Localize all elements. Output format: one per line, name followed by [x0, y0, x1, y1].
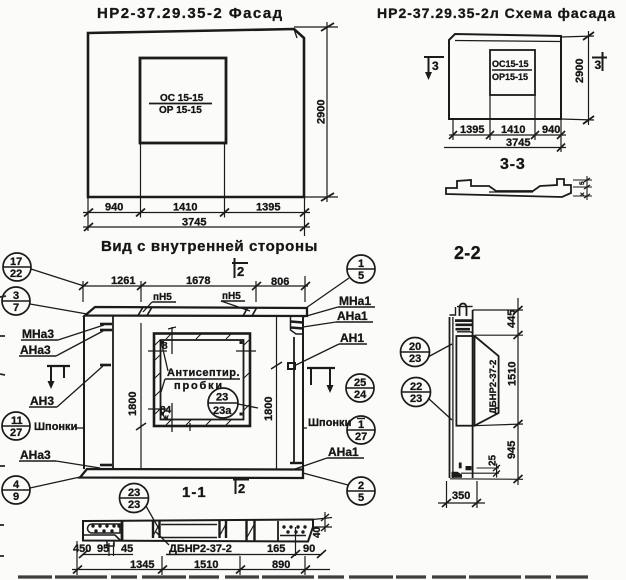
- svg-text:5: 5: [358, 492, 364, 504]
- svg-text:Шпонки: Шпонки: [34, 421, 77, 433]
- svg-text:2900: 2900: [316, 100, 328, 124]
- svg-text:23: 23: [128, 499, 140, 511]
- svg-text:5: 5: [579, 181, 586, 185]
- svg-text:940: 940: [105, 202, 123, 214]
- svg-text:20: 20: [409, 341, 421, 353]
- svg-text:ОС 15-15: ОС 15-15: [160, 93, 204, 104]
- svg-text:ДБНР2-37-2: ДБНР2-37-2: [488, 360, 499, 414]
- svg-text:40: 40: [312, 526, 323, 538]
- svg-text:2-2: 2-2: [454, 243, 481, 263]
- svg-text:22: 22: [410, 381, 422, 393]
- svg-text:ОР 15-15: ОР 15-15: [159, 105, 202, 116]
- svg-text:24: 24: [354, 389, 367, 401]
- svg-text:27: 27: [10, 427, 22, 439]
- svg-text:890: 890: [272, 559, 290, 571]
- svg-text:1510: 1510: [507, 362, 519, 386]
- svg-text:3745: 3745: [182, 217, 206, 229]
- svg-text:1261: 1261: [111, 275, 135, 287]
- svg-text:25: 25: [488, 454, 499, 466]
- svg-text:25: 25: [354, 377, 366, 389]
- svg-text:АНа3: АНа3: [20, 448, 51, 462]
- svg-text:3: 3: [595, 58, 602, 72]
- svg-text:х: х: [579, 192, 586, 196]
- svg-text:2: 2: [358, 480, 364, 492]
- svg-text:ОС15-15: ОС15-15: [492, 59, 529, 69]
- svg-text:23: 23: [216, 392, 228, 404]
- svg-text:4: 4: [13, 479, 20, 491]
- svg-text:2900: 2900: [574, 59, 586, 83]
- svg-text:1410: 1410: [501, 124, 525, 136]
- svg-text:1800: 1800: [127, 392, 139, 416]
- svg-text:АНа3: АНа3: [20, 343, 51, 357]
- svg-text:3: 3: [13, 290, 19, 302]
- svg-text:1510: 1510: [194, 559, 218, 571]
- svg-text:1410: 1410: [173, 202, 197, 214]
- svg-text:806: 806: [271, 276, 289, 288]
- svg-text:АН1: АН1: [340, 331, 364, 345]
- svg-text:23: 23: [410, 393, 422, 405]
- svg-text:1: 1: [358, 258, 364, 270]
- svg-text:1395: 1395: [256, 202, 280, 214]
- svg-text:940: 940: [542, 124, 560, 136]
- svg-text:3-3: 3-3: [500, 156, 526, 173]
- svg-text:2: 2: [237, 264, 244, 279]
- svg-text:МНа1: МНа1: [339, 294, 371, 308]
- svg-text:НР2-37.29.35-2л Схема фасада: НР2-37.29.35-2л Схема фасада: [377, 5, 616, 21]
- svg-text:45: 45: [121, 543, 133, 555]
- svg-text:МНа3: МНа3: [22, 327, 54, 341]
- svg-text:1800: 1800: [263, 397, 275, 421]
- svg-text:23: 23: [409, 353, 421, 365]
- svg-text:9: 9: [13, 491, 19, 503]
- svg-text:ОР15-15: ОР15-15: [492, 72, 528, 82]
- svg-text:5: 5: [358, 270, 364, 282]
- svg-text:АНа1: АНа1: [328, 445, 359, 459]
- svg-text:90: 90: [303, 543, 315, 555]
- svg-text:АН3: АН3: [30, 394, 54, 408]
- svg-text:3745: 3745: [506, 137, 530, 149]
- svg-text:3: 3: [432, 59, 439, 73]
- svg-text:23а: 23а: [213, 405, 232, 417]
- svg-text:Вид с внутренней стороны: Вид с внутренней стороны: [101, 238, 318, 255]
- svg-text:1678: 1678: [186, 275, 210, 287]
- svg-text:350: 350: [452, 490, 470, 502]
- svg-text:450: 450: [73, 543, 91, 555]
- svg-text:1345: 1345: [130, 559, 154, 571]
- svg-text:НР2-37.29.35-2 Фасад: НР2-37.29.35-2 Фасад: [97, 5, 284, 22]
- svg-text:23: 23: [128, 487, 140, 499]
- svg-text:17: 17: [10, 256, 22, 268]
- svg-text:1: 1: [358, 419, 364, 431]
- svg-text:7: 7: [13, 302, 19, 314]
- svg-text:АНа1: АНа1: [337, 309, 368, 323]
- svg-text:1-1: 1-1: [182, 484, 207, 501]
- svg-text:11: 11: [11, 415, 23, 427]
- svg-text:22: 22: [10, 268, 22, 280]
- svg-text:Антисептир.: Антисептир.: [167, 367, 240, 379]
- svg-text:Шпонки: Шпонки: [308, 417, 351, 429]
- svg-text:2: 2: [238, 481, 245, 496]
- svg-text:ДБНР2-37-2: ДБНР2-37-2: [169, 543, 232, 555]
- svg-text:27: 27: [355, 431, 367, 443]
- svg-text:445: 445: [506, 310, 518, 328]
- svg-text:1395: 1395: [460, 124, 484, 136]
- svg-text:945: 945: [506, 441, 518, 459]
- svg-text:95: 95: [97, 543, 109, 555]
- svg-text:165: 165: [267, 543, 285, 555]
